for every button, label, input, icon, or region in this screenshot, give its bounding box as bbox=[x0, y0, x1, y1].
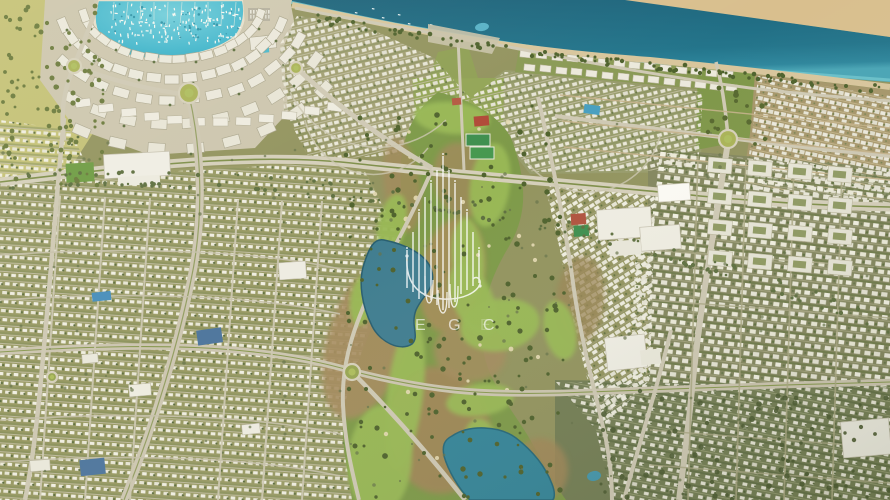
svg-text:E: E bbox=[480, 317, 491, 334]
